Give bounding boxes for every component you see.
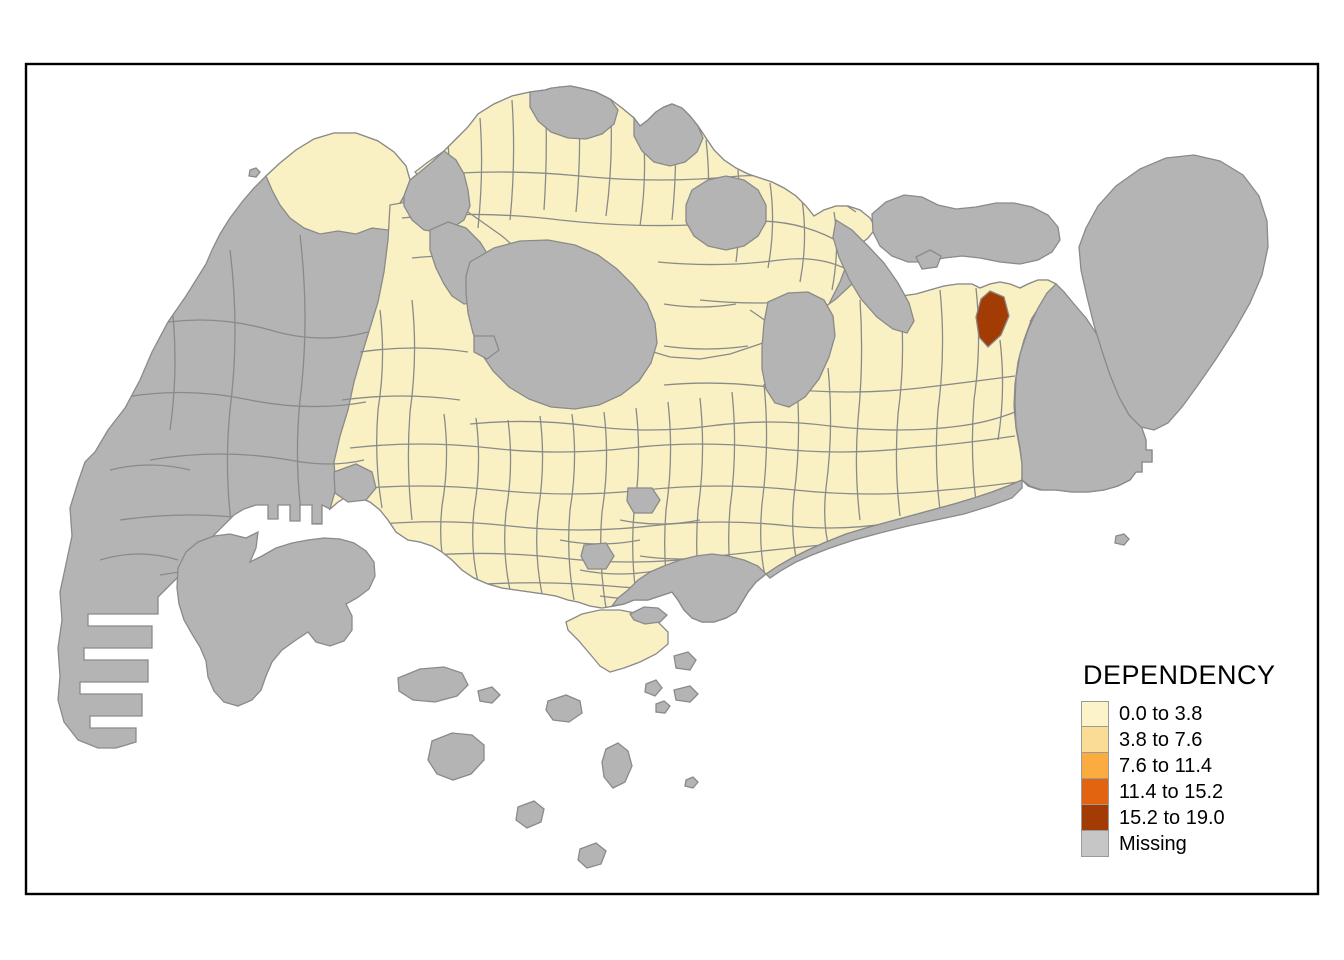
legend-item-class5: 15.2 to 19.0: [1081, 805, 1311, 831]
legend-swatch-class1: [1081, 701, 1109, 727]
legend-swatch-class5: [1081, 805, 1109, 831]
legend-swatch-class3: [1081, 753, 1109, 779]
map-legend: DEPENDENCY 0.0 to 3.8 3.8 to 7.6 7.6 to …: [1081, 660, 1311, 857]
legend-rows: 0.0 to 3.8 3.8 to 7.6 7.6 to 11.4 11.4 t…: [1081, 701, 1311, 857]
legend-swatch-class4: [1081, 779, 1109, 805]
legend-label-class3: 7.6 to 11.4: [1109, 755, 1212, 778]
legend-swatch-missing: [1081, 831, 1109, 857]
region-small-gray-3: [581, 543, 614, 569]
legend-label-class2: 3.8 to 7.6: [1109, 729, 1202, 752]
legend-item-class4: 11.4 to 15.2: [1081, 779, 1311, 805]
legend-label-missing: Missing: [1109, 833, 1187, 856]
legend-label-class1: 0.0 to 3.8: [1109, 703, 1202, 726]
map-figure: DEPENDENCY 0.0 to 3.8 3.8 to 7.6 7.6 to …: [0, 0, 1344, 960]
legend-item-class3: 7.6 to 11.4: [1081, 753, 1311, 779]
legend-label-class4: 11.4 to 15.2: [1109, 781, 1223, 804]
legend-title: DEPENDENCY: [1083, 660, 1311, 690]
legend-item-class1: 0.0 to 3.8: [1081, 701, 1311, 727]
legend-swatch-class2: [1081, 727, 1109, 753]
region-small-gray-2: [627, 488, 660, 513]
region-seletar: [686, 176, 766, 250]
legend-label-class5: 15.2 to 19.0: [1109, 807, 1225, 830]
legend-item-class2: 3.8 to 7.6: [1081, 727, 1311, 753]
legend-item-missing: Missing: [1081, 831, 1311, 857]
